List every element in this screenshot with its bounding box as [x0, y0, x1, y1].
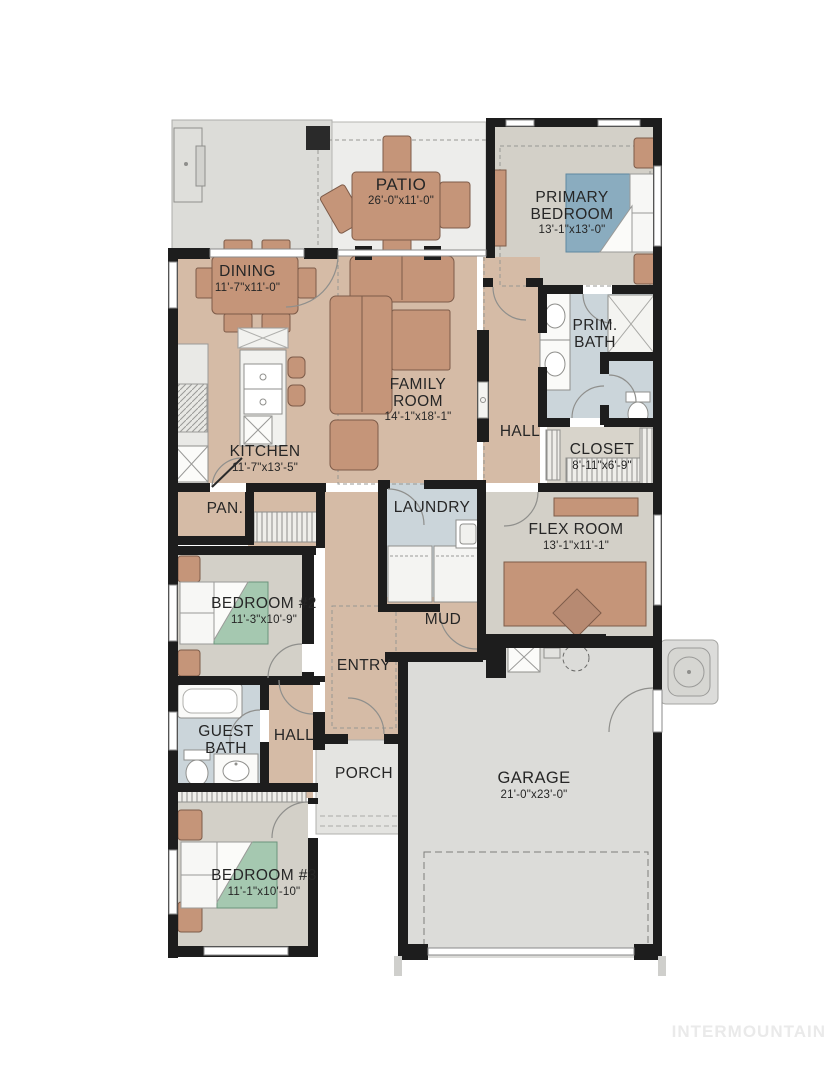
patio-chair-right [440, 182, 470, 228]
nightstand [178, 650, 200, 676]
sofa-left [330, 296, 392, 414]
toilet-tank [626, 392, 650, 402]
toilet-tank [184, 750, 210, 760]
patio-post [306, 126, 330, 150]
driveway-edges [394, 956, 666, 976]
toilet [186, 760, 208, 786]
ac-unit [668, 648, 710, 696]
patio-table [352, 172, 440, 240]
garage-floor [408, 646, 653, 958]
coffee-table [392, 310, 450, 370]
entry-floor [325, 597, 402, 740]
patio-slider [338, 250, 486, 256]
floor-plan-page: PATIO 26'-0"x11'-0" PRIMARY BEDROOM 13'-… [0, 0, 834, 1080]
dining-table [212, 256, 298, 314]
hall-upper-floor [483, 257, 540, 483]
patio-chair-top [383, 136, 411, 176]
bar-stool [288, 385, 305, 406]
shelf [544, 648, 560, 658]
coat-closet [254, 512, 320, 542]
nightstand [178, 556, 200, 582]
art-niche [478, 382, 488, 418]
dryer [434, 546, 478, 602]
fridge [175, 384, 207, 432]
flex-shelf [554, 498, 638, 516]
builder-watermark: INTERMOUNTAIN [672, 1022, 826, 1042]
nightstand [178, 810, 202, 840]
ottoman [330, 420, 378, 470]
washer [388, 546, 432, 602]
pantry-floor [178, 492, 245, 536]
porch-floor [316, 740, 406, 834]
corridor-floor [325, 492, 378, 597]
patio-grill [174, 128, 205, 202]
floor-plan-drawing [0, 0, 834, 1080]
garage-side-door-gap [653, 690, 662, 732]
garage-door [428, 948, 634, 955]
hall-lower-floor [269, 676, 313, 798]
bar-stool [288, 357, 305, 378]
